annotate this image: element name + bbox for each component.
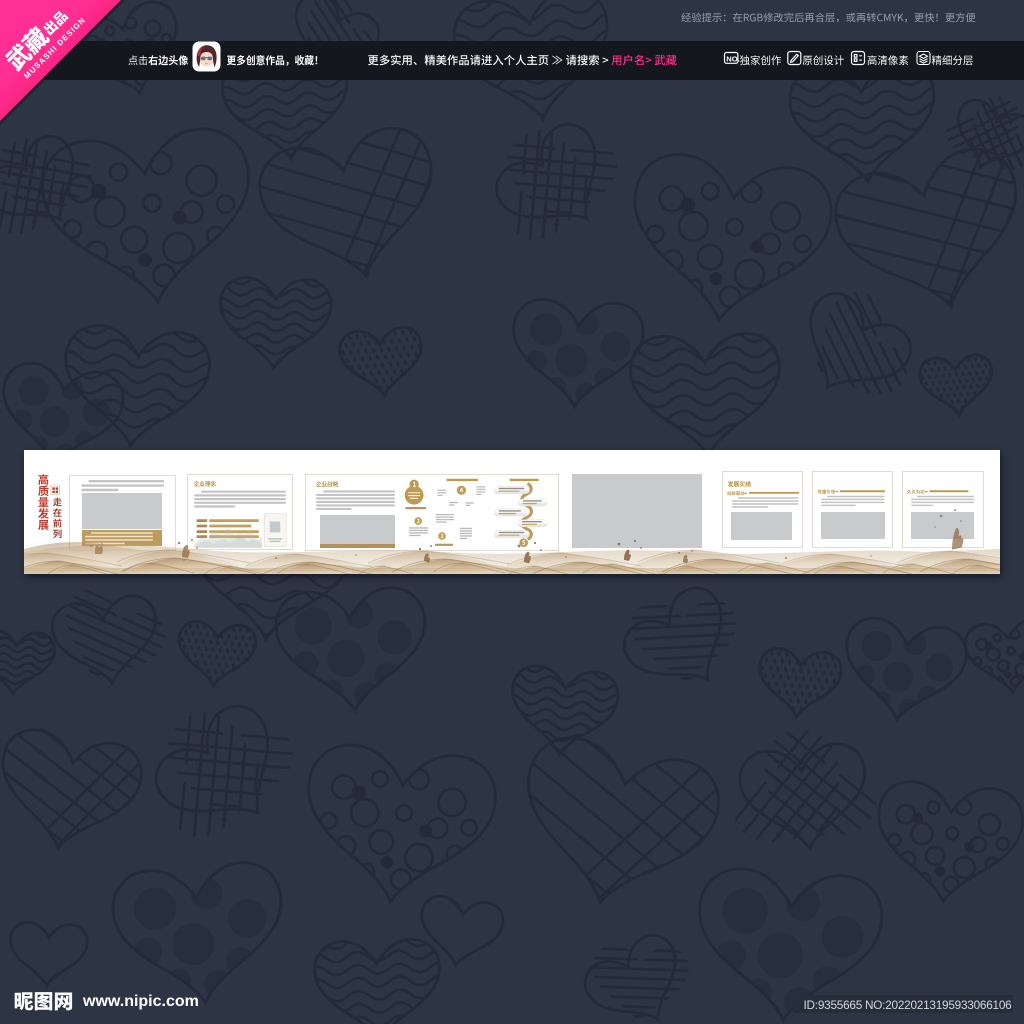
svg-text:NO.: NO. (726, 54, 740, 63)
